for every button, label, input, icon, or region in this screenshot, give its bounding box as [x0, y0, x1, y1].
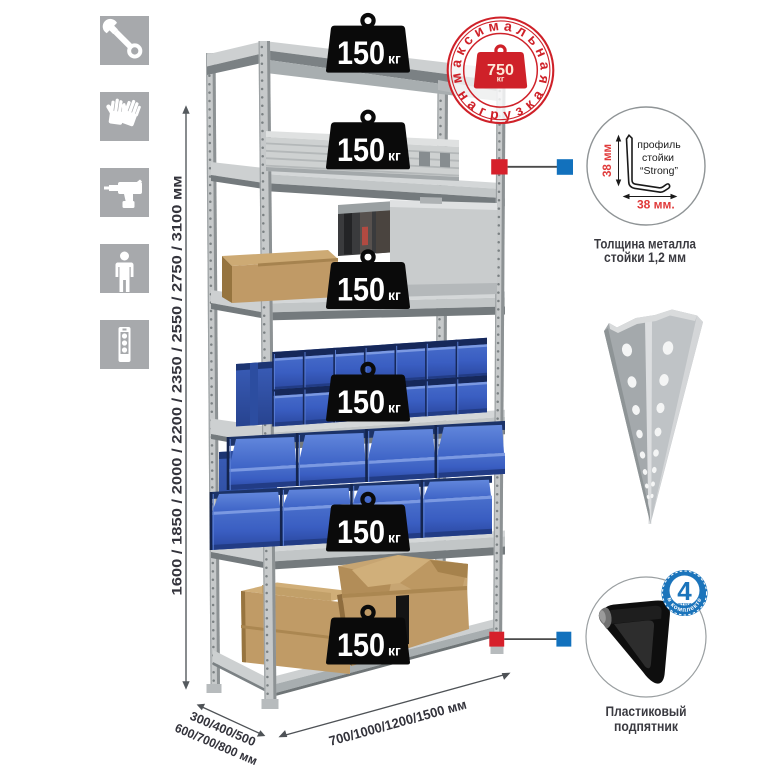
svg-text:150: 150	[337, 35, 385, 71]
svg-text:профиль: профиль	[637, 139, 681, 151]
svg-text:подпятник: подпятник	[614, 718, 679, 734]
svg-text:38 мм: 38 мм	[602, 144, 614, 177]
svg-text:кг: кг	[388, 643, 401, 659]
svg-text:1600 / 1850 / 2000 / 2200 / 23: 1600 / 1850 / 2000 / 2200 / 2350 / 2550 …	[170, 175, 185, 595]
svg-text:150: 150	[337, 132, 385, 168]
svg-text:“Strong”: “Strong”	[640, 165, 678, 177]
svg-text:стойки: стойки	[642, 152, 674, 164]
svg-text:150: 150	[337, 272, 385, 308]
svg-text:кг: кг	[388, 400, 401, 416]
svg-text:Пластиковый: Пластиковый	[606, 703, 687, 719]
svg-text:штуки: штуки	[678, 602, 692, 607]
svg-text:кг: кг	[497, 73, 505, 83]
svg-text:кг: кг	[388, 530, 401, 546]
svg-text:150: 150	[337, 384, 385, 420]
svg-text:стойки 1,2 мм: стойки 1,2 мм	[604, 249, 686, 265]
svg-text:38 мм.: 38 мм.	[637, 198, 675, 212]
svg-text:150: 150	[337, 514, 385, 550]
svg-text:кг: кг	[388, 287, 401, 303]
svg-text:150: 150	[337, 627, 385, 663]
svg-text:кг: кг	[388, 51, 401, 67]
svg-text:кг: кг	[388, 147, 401, 163]
